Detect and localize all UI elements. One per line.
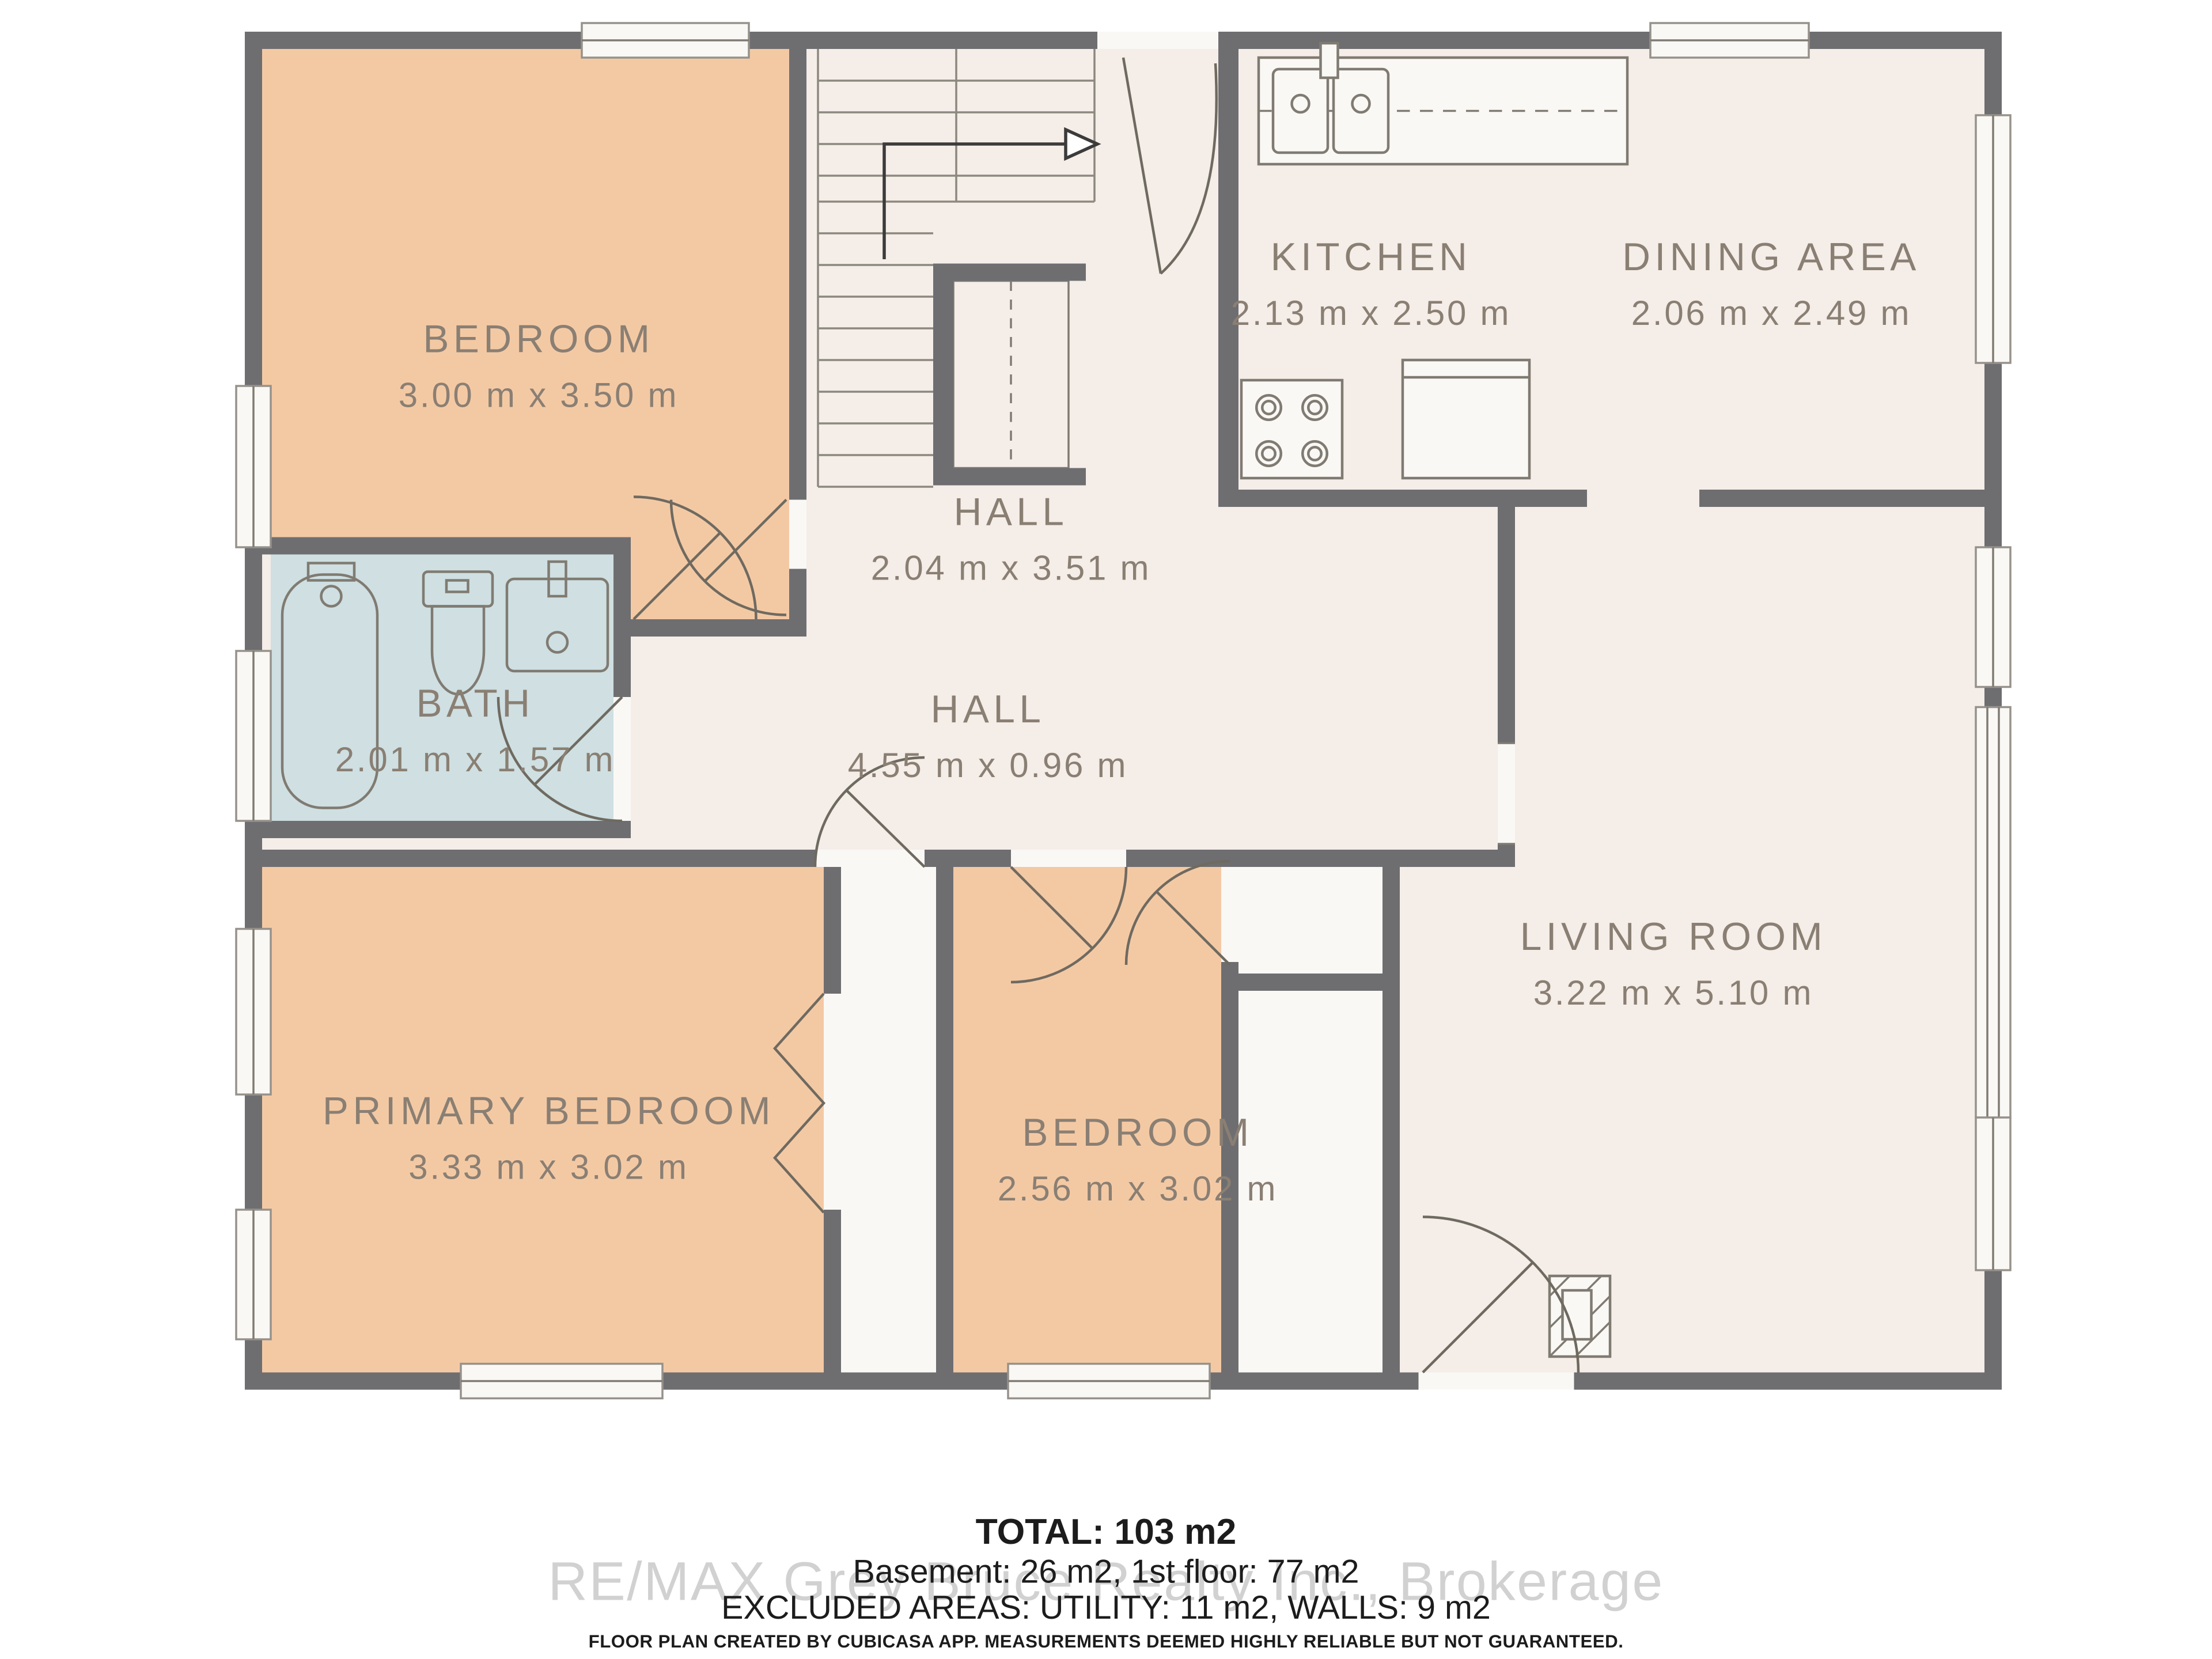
room-label-bedroom-tl: BEDROOM3.00 m x 3.50 m (399, 320, 679, 414)
room-label-dining-area: DINING AREA2.06 m x 2.49 m (1622, 238, 1921, 332)
fridge-icon (1403, 360, 1529, 478)
window-icon (1976, 1118, 2010, 1270)
window-icon (461, 1364, 662, 1399)
room-label-kitchen: KITCHEN2.13 m x 2.50 m (1231, 238, 1511, 332)
fireplace-icon (1550, 1276, 1610, 1357)
room-label-primary-bedroom: PRIMARY BEDROOM3.33 m x 3.02 m (323, 1092, 775, 1186)
room-fill-closet-mid (841, 867, 936, 1373)
window-icon (582, 23, 749, 58)
window-icon (1008, 1364, 1210, 1399)
window-icon (1976, 547, 2010, 687)
window-icon (1650, 23, 1809, 58)
room-label-hall-upper: HALL2.04 m x 3.51 m (871, 493, 1151, 587)
excluded-areas-text: EXCLUDED AREAS: UTILITY: 11 m2, WALLS: 9… (0, 1589, 2212, 1628)
disclaimer-text: FLOOR PLAN CREATED BY CUBICASA APP. MEAS… (0, 1632, 2212, 1652)
stove-icon (1241, 380, 1342, 478)
window-icon (1976, 115, 2010, 363)
window-icon (1976, 707, 2010, 1118)
window-icon (236, 929, 271, 1095)
total-area-text: TOTAL: 103 m2 (0, 1512, 2212, 1554)
floor-areas-text: Basement: 26 m2, 1st floor: 77 m2 (0, 1552, 2212, 1592)
room-label-hall-lower: HALL4.55 m x 0.96 m (848, 691, 1128, 785)
room-label-living-room: LIVING ROOM3.22 m x 5.10 m (1520, 918, 1827, 1012)
window-icon (236, 386, 271, 547)
kitchen-counter-icon (1259, 43, 1627, 164)
floorplan-page: BEDROOM3.00 m x 3.50 m KITCHEN2.13 m x 2… (0, 0, 2212, 1659)
room-label-bedroom-mid: BEDROOM2.56 m x 3.02 m (998, 1114, 1278, 1208)
room-label-bath: BATH2.01 m x 1.57 m (335, 685, 615, 779)
window-icon (236, 1210, 271, 1339)
window-icon (236, 651, 271, 821)
room-fill-closet-tr (1238, 867, 1382, 974)
